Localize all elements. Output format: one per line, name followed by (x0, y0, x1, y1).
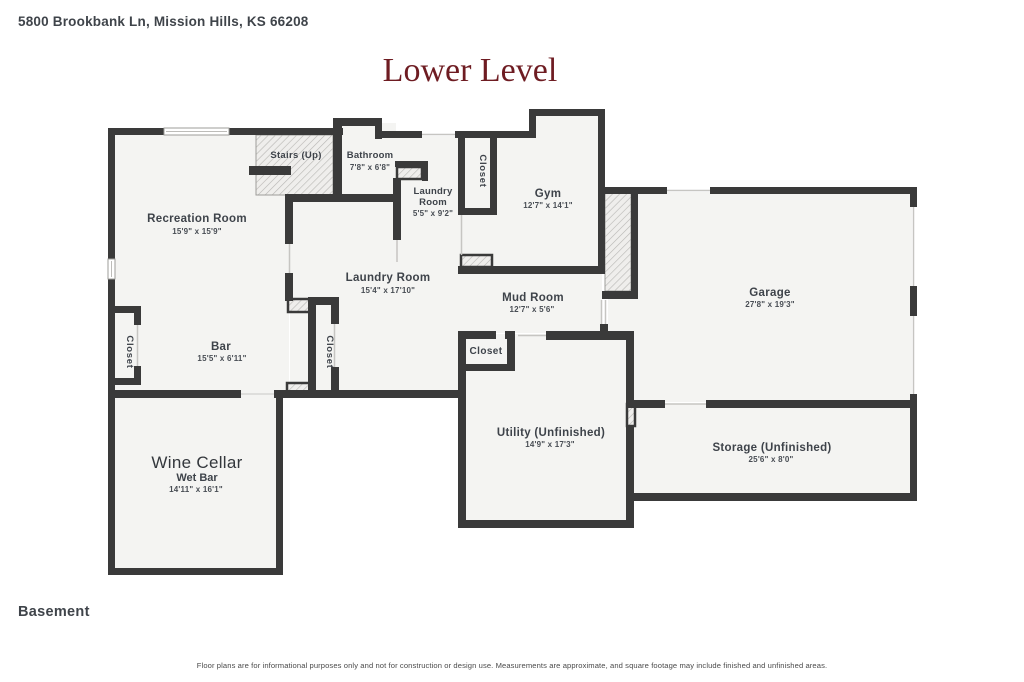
wall (602, 291, 638, 299)
wall (134, 306, 141, 325)
wall (546, 331, 633, 340)
disclaimer-text: Floor plans are for informational purpos… (0, 661, 1024, 670)
wall (108, 279, 115, 575)
room-label-recreation: Recreation Room (147, 213, 247, 225)
wall (333, 118, 342, 202)
room-label-stairs-up: Stairs (Up) (270, 150, 321, 161)
room-label-wine-cellar: Wine Cellar (151, 453, 242, 472)
room-dims-recreation: 15'9" x 15'9" (172, 227, 222, 236)
room-dims-bathroom: 7'8" x 6'8" (350, 163, 390, 172)
room-label-utility: Utility (Unfinished) (497, 427, 605, 439)
wall (308, 297, 316, 398)
wall (249, 166, 291, 175)
room-label-bathroom: Bathroom (347, 150, 393, 161)
room-dims-mud-room: 12'7" x 5'6" (510, 305, 555, 314)
wall (458, 364, 515, 371)
floor-plan: Recreation Room 15'9" x 15'9" Stairs (Up… (0, 0, 1024, 682)
wall (108, 378, 141, 385)
room-dims-laundry-large: 15'4" x 17'10" (361, 286, 415, 295)
wall (285, 273, 293, 301)
wall (710, 187, 917, 194)
wall (458, 266, 605, 274)
wall (600, 324, 608, 333)
wall (626, 493, 917, 501)
room-label-closet-top: Closet (477, 154, 488, 187)
wall (331, 297, 339, 324)
wall (458, 520, 634, 528)
room-dims-storage: 25'6" x 8'0" (749, 455, 794, 464)
wall (393, 178, 401, 240)
room-label-laundry-small-2: Room (419, 197, 447, 208)
wall (285, 199, 293, 244)
room-label-closet-mudroom: Closet (470, 346, 503, 357)
room-dims-bar: 15'5" x 6'11" (197, 354, 246, 363)
stair-landing-hatch (461, 255, 492, 267)
wall (108, 128, 115, 259)
room-label-closet-left: Closet (124, 335, 135, 368)
room-dims-wine-cellar: 14'11" x 16'1" (169, 485, 223, 494)
room-dims-garage: 27'8" x 19'3" (745, 300, 795, 309)
room-label-bar: Bar (211, 341, 231, 353)
wall (276, 397, 283, 572)
wall (455, 131, 536, 138)
wall (490, 138, 497, 215)
wall (626, 331, 634, 405)
wall (331, 367, 339, 398)
room-label-laundry-small-1: Laundry (414, 186, 453, 197)
wall (108, 390, 241, 398)
wall (626, 426, 634, 528)
wall (529, 109, 605, 116)
room-label-garage: Garage (749, 287, 790, 299)
room-label-gym: Gym (535, 188, 561, 200)
wall (598, 109, 605, 274)
wall (458, 138, 465, 215)
wall (108, 568, 283, 575)
level-label: Basement (18, 604, 90, 620)
wall (910, 394, 917, 501)
wall (285, 194, 398, 202)
wall (910, 286, 917, 316)
wall (706, 400, 917, 408)
room-label-storage: Storage (Unfinished) (712, 442, 831, 454)
wall (229, 128, 343, 135)
room-label-laundry-large: Laundry Room (346, 272, 431, 284)
wall (375, 131, 422, 138)
room-label-mud-room: Mud Room (502, 292, 564, 304)
room-dims-laundry-small: 5'5" x 9'2" (413, 209, 453, 218)
wall (274, 390, 460, 398)
wall (631, 190, 638, 297)
room-sublabel-wet-bar: Wet Bar (176, 472, 218, 484)
stair-landing-hatch (397, 167, 422, 179)
wall (458, 331, 466, 528)
wall (335, 118, 382, 126)
wall (910, 187, 917, 207)
wall (422, 161, 428, 181)
wall (108, 128, 164, 135)
room-dims-utility: 14'9" x 17'3" (525, 440, 575, 449)
garage-stairs-hatch (605, 190, 631, 291)
room-dims-gym: 12'7" x 14'1" (523, 201, 573, 210)
room-label-closet-middle: Closet (324, 335, 335, 368)
wall (458, 208, 497, 215)
stairs-up-hatch (256, 135, 333, 195)
